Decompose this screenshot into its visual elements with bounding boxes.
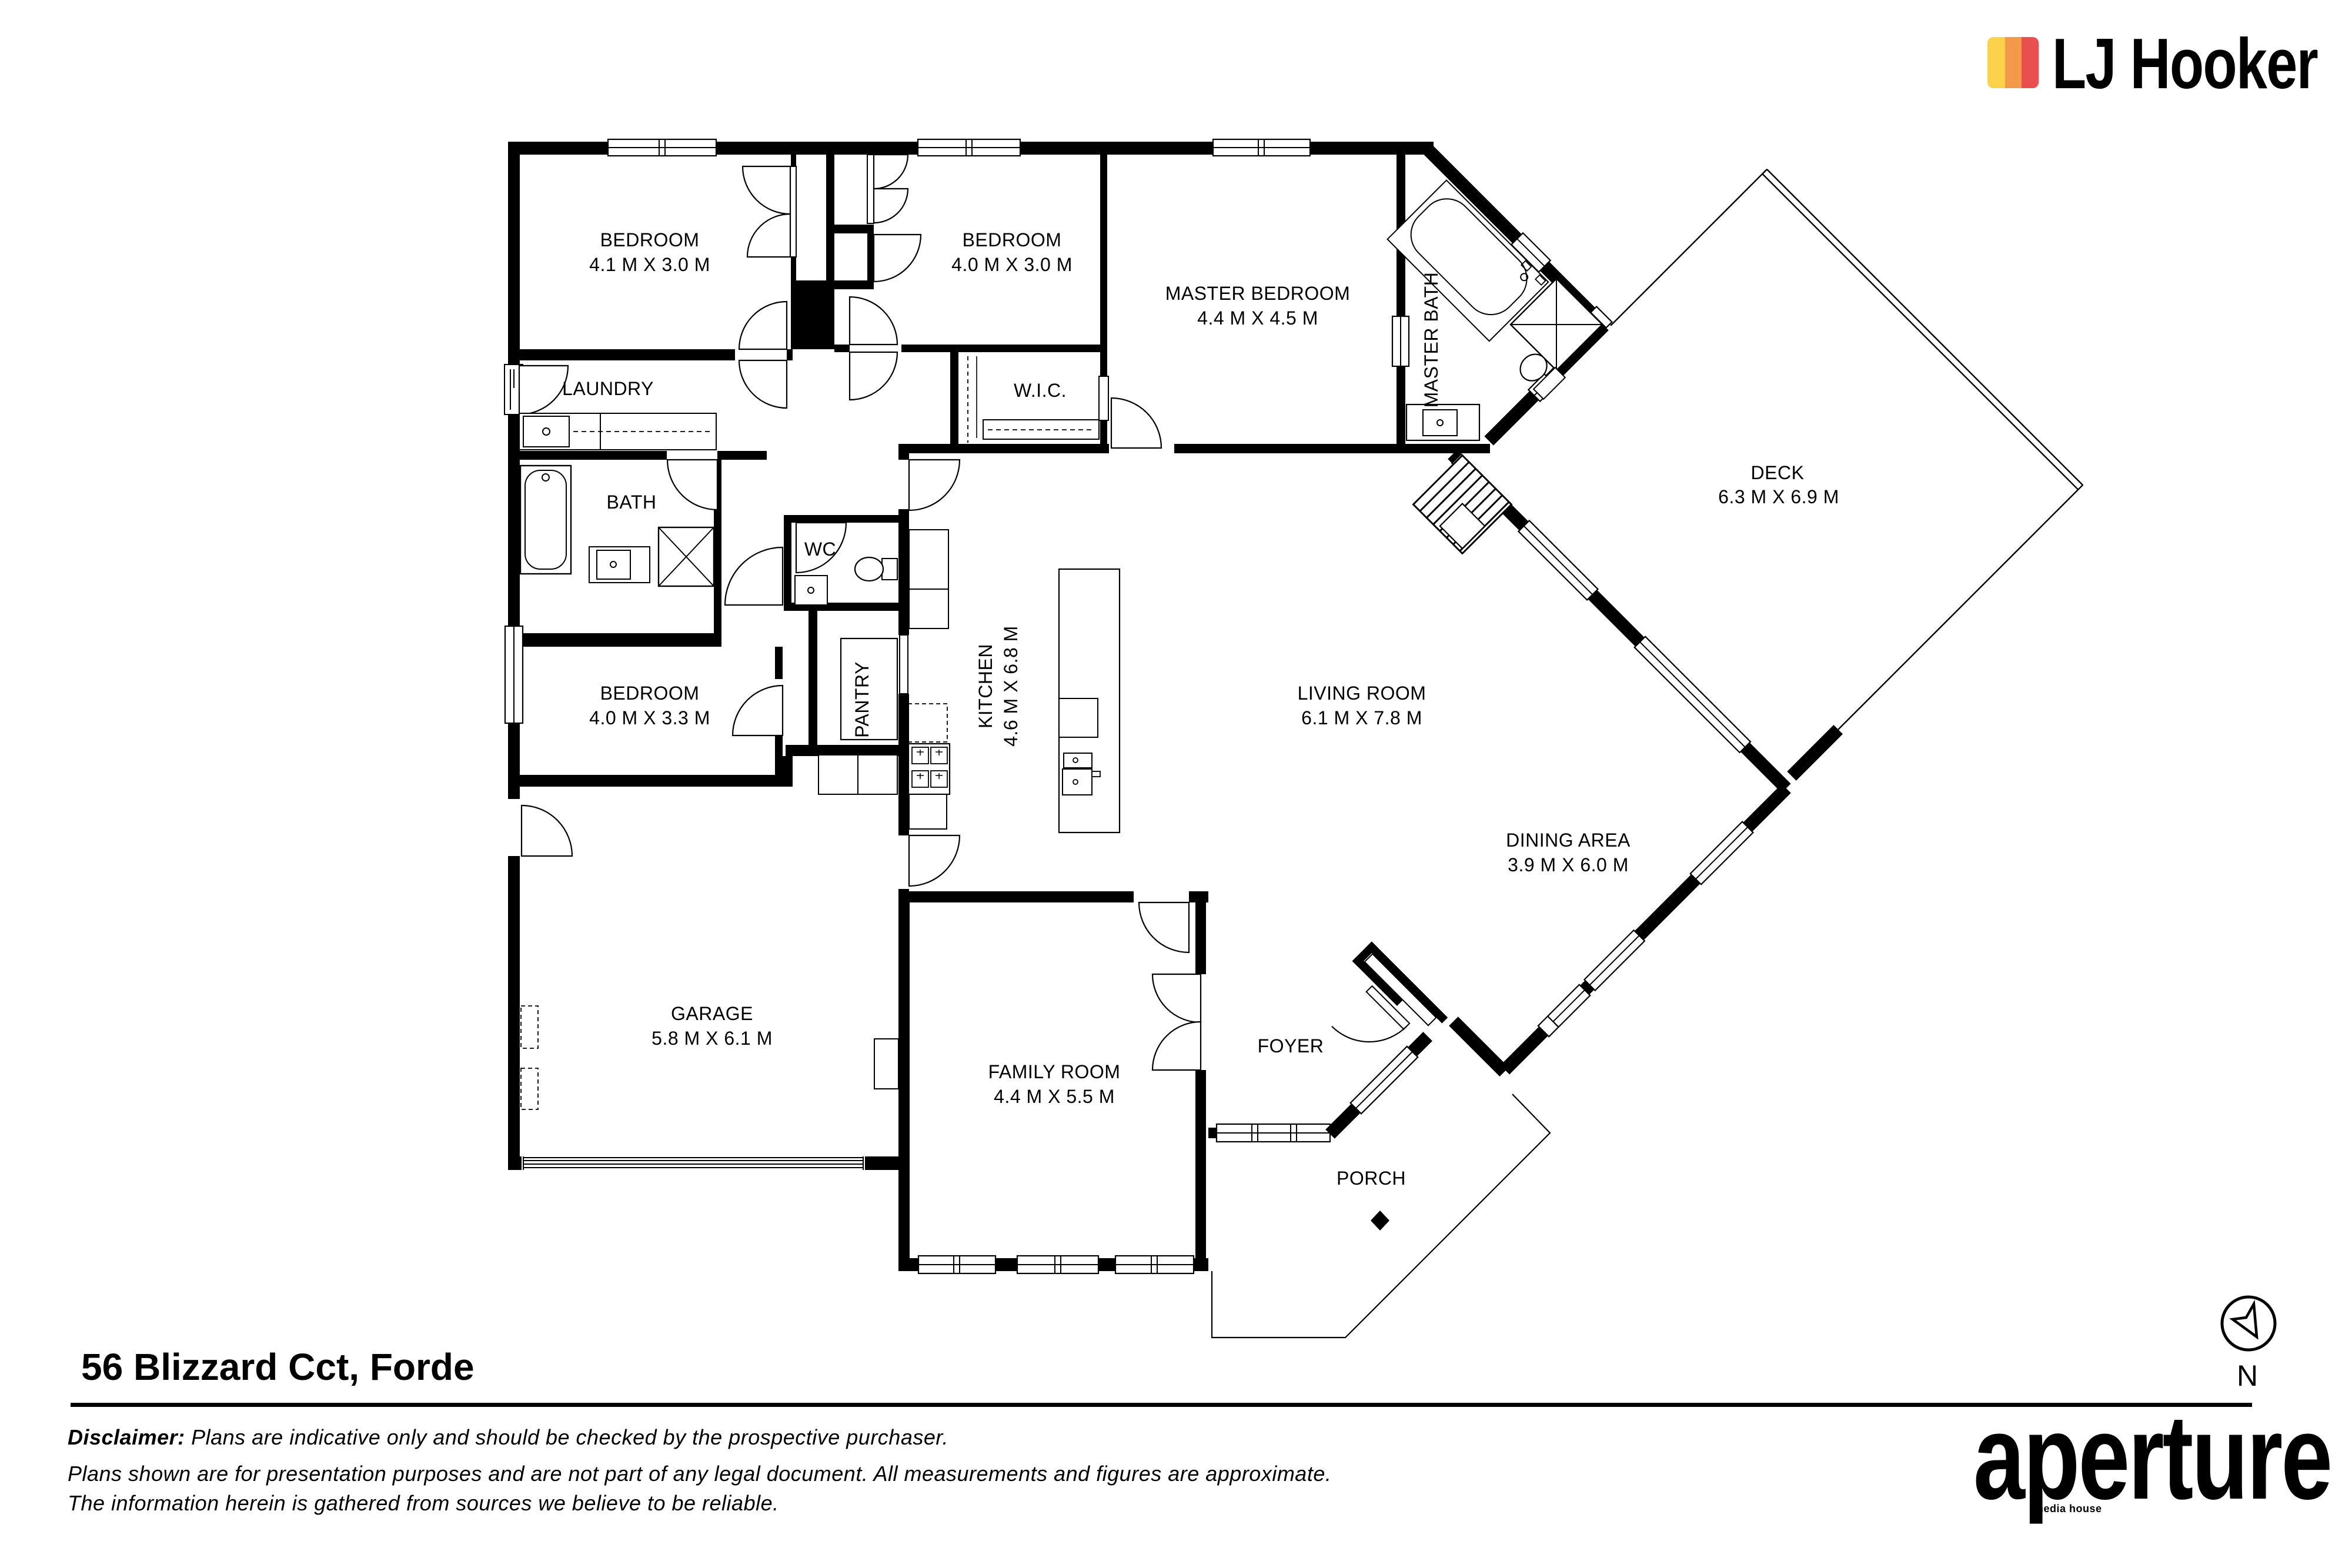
svg-text:6.1 M X 7.8 M: 6.1 M X 7.8 M bbox=[1301, 707, 1422, 728]
svg-text:WC: WC bbox=[804, 539, 836, 560]
svg-text:4.6 M X 6.8 M: 4.6 M X 6.8 M bbox=[1000, 626, 1021, 747]
svg-text:aperture: aperture bbox=[1973, 1389, 2331, 1524]
svg-text:Disclaimer: Plans are indicati: Disclaimer: Plans are indicative only an… bbox=[68, 1425, 948, 1449]
svg-text:GARAGE: GARAGE bbox=[671, 1003, 753, 1024]
svg-text:LAUNDRY: LAUNDRY bbox=[562, 378, 654, 399]
svg-text:4.0 M X 3.3 M: 4.0 M X 3.3 M bbox=[589, 707, 710, 728]
svg-text:3.9 M X 6.0 M: 3.9 M X 6.0 M bbox=[1508, 854, 1629, 875]
svg-text:FOYER: FOYER bbox=[1258, 1035, 1324, 1057]
svg-text:MASTER BATH: MASTER BATH bbox=[1421, 272, 1442, 408]
svg-text:PORCH: PORCH bbox=[1337, 1168, 1406, 1189]
svg-text:4.4 M X 5.5 M: 4.4 M X 5.5 M bbox=[994, 1086, 1115, 1107]
svg-text:LIVING ROOM: LIVING ROOM bbox=[1298, 683, 1426, 704]
svg-text:BEDROOM: BEDROOM bbox=[600, 683, 700, 704]
svg-text:DINING AREA: DINING AREA bbox=[1506, 830, 1631, 851]
svg-text:media house: media house bbox=[2034, 1503, 2102, 1514]
svg-text:4.4 M X 4.5 M: 4.4 M X 4.5 M bbox=[1197, 307, 1318, 329]
svg-text:56 Blizzard Cct, Forde: 56 Blizzard Cct, Forde bbox=[81, 1346, 475, 1388]
svg-text:4.1 M X 3.0 M: 4.1 M X 3.0 M bbox=[589, 254, 710, 275]
svg-text:W.I.C.: W.I.C. bbox=[1014, 380, 1067, 401]
svg-text:4.0 M X 3.0 M: 4.0 M X 3.0 M bbox=[951, 254, 1073, 275]
svg-text:FAMILY ROOM: FAMILY ROOM bbox=[988, 1061, 1121, 1082]
svg-text:PANTRY: PANTRY bbox=[851, 661, 873, 738]
svg-text:5.8 M X 6.1 M: 5.8 M X 6.1 M bbox=[652, 1028, 773, 1049]
svg-text:MASTER BEDROOM: MASTER BEDROOM bbox=[1165, 283, 1351, 304]
svg-text:KITCHEN: KITCHEN bbox=[975, 644, 996, 728]
svg-text:BATH: BATH bbox=[607, 492, 657, 513]
svg-text:N: N bbox=[2237, 1359, 2258, 1392]
svg-text:Plans shown are for presentati: Plans shown are for presentation purpose… bbox=[68, 1462, 1331, 1486]
svg-text:LJ Hooker: LJ Hooker bbox=[2052, 24, 2317, 104]
svg-text:DECK: DECK bbox=[1751, 462, 1805, 483]
svg-text:The information herein is gath: The information herein is gathered from … bbox=[68, 1491, 779, 1515]
svg-text:BEDROOM: BEDROOM bbox=[600, 229, 700, 250]
svg-text:6.3 M X 6.9 M: 6.3 M X 6.9 M bbox=[1718, 486, 1839, 507]
svg-text:BEDROOM: BEDROOM bbox=[963, 229, 1062, 250]
